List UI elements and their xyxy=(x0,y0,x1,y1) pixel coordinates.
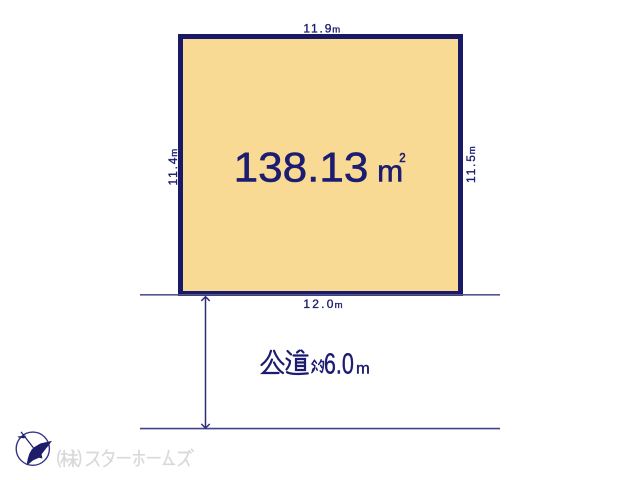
svg-text:6.0: 6.0 xyxy=(324,349,354,381)
svg-text:11.9: 11.9 xyxy=(303,22,331,36)
svg-text:11.4: 11.4 xyxy=(166,157,180,185)
svg-text:12.0: 12.0 xyxy=(303,297,333,311)
svg-text:11.5: 11.5 xyxy=(464,155,478,183)
svg-text:m: m xyxy=(356,361,370,378)
svg-text:m: m xyxy=(332,25,340,36)
svg-text:m: m xyxy=(169,149,180,157)
svg-text:m: m xyxy=(467,146,478,154)
svg-text:m: m xyxy=(335,300,343,311)
svg-text:2: 2 xyxy=(399,151,405,165)
svg-text:138.13: 138.13 xyxy=(234,143,369,190)
